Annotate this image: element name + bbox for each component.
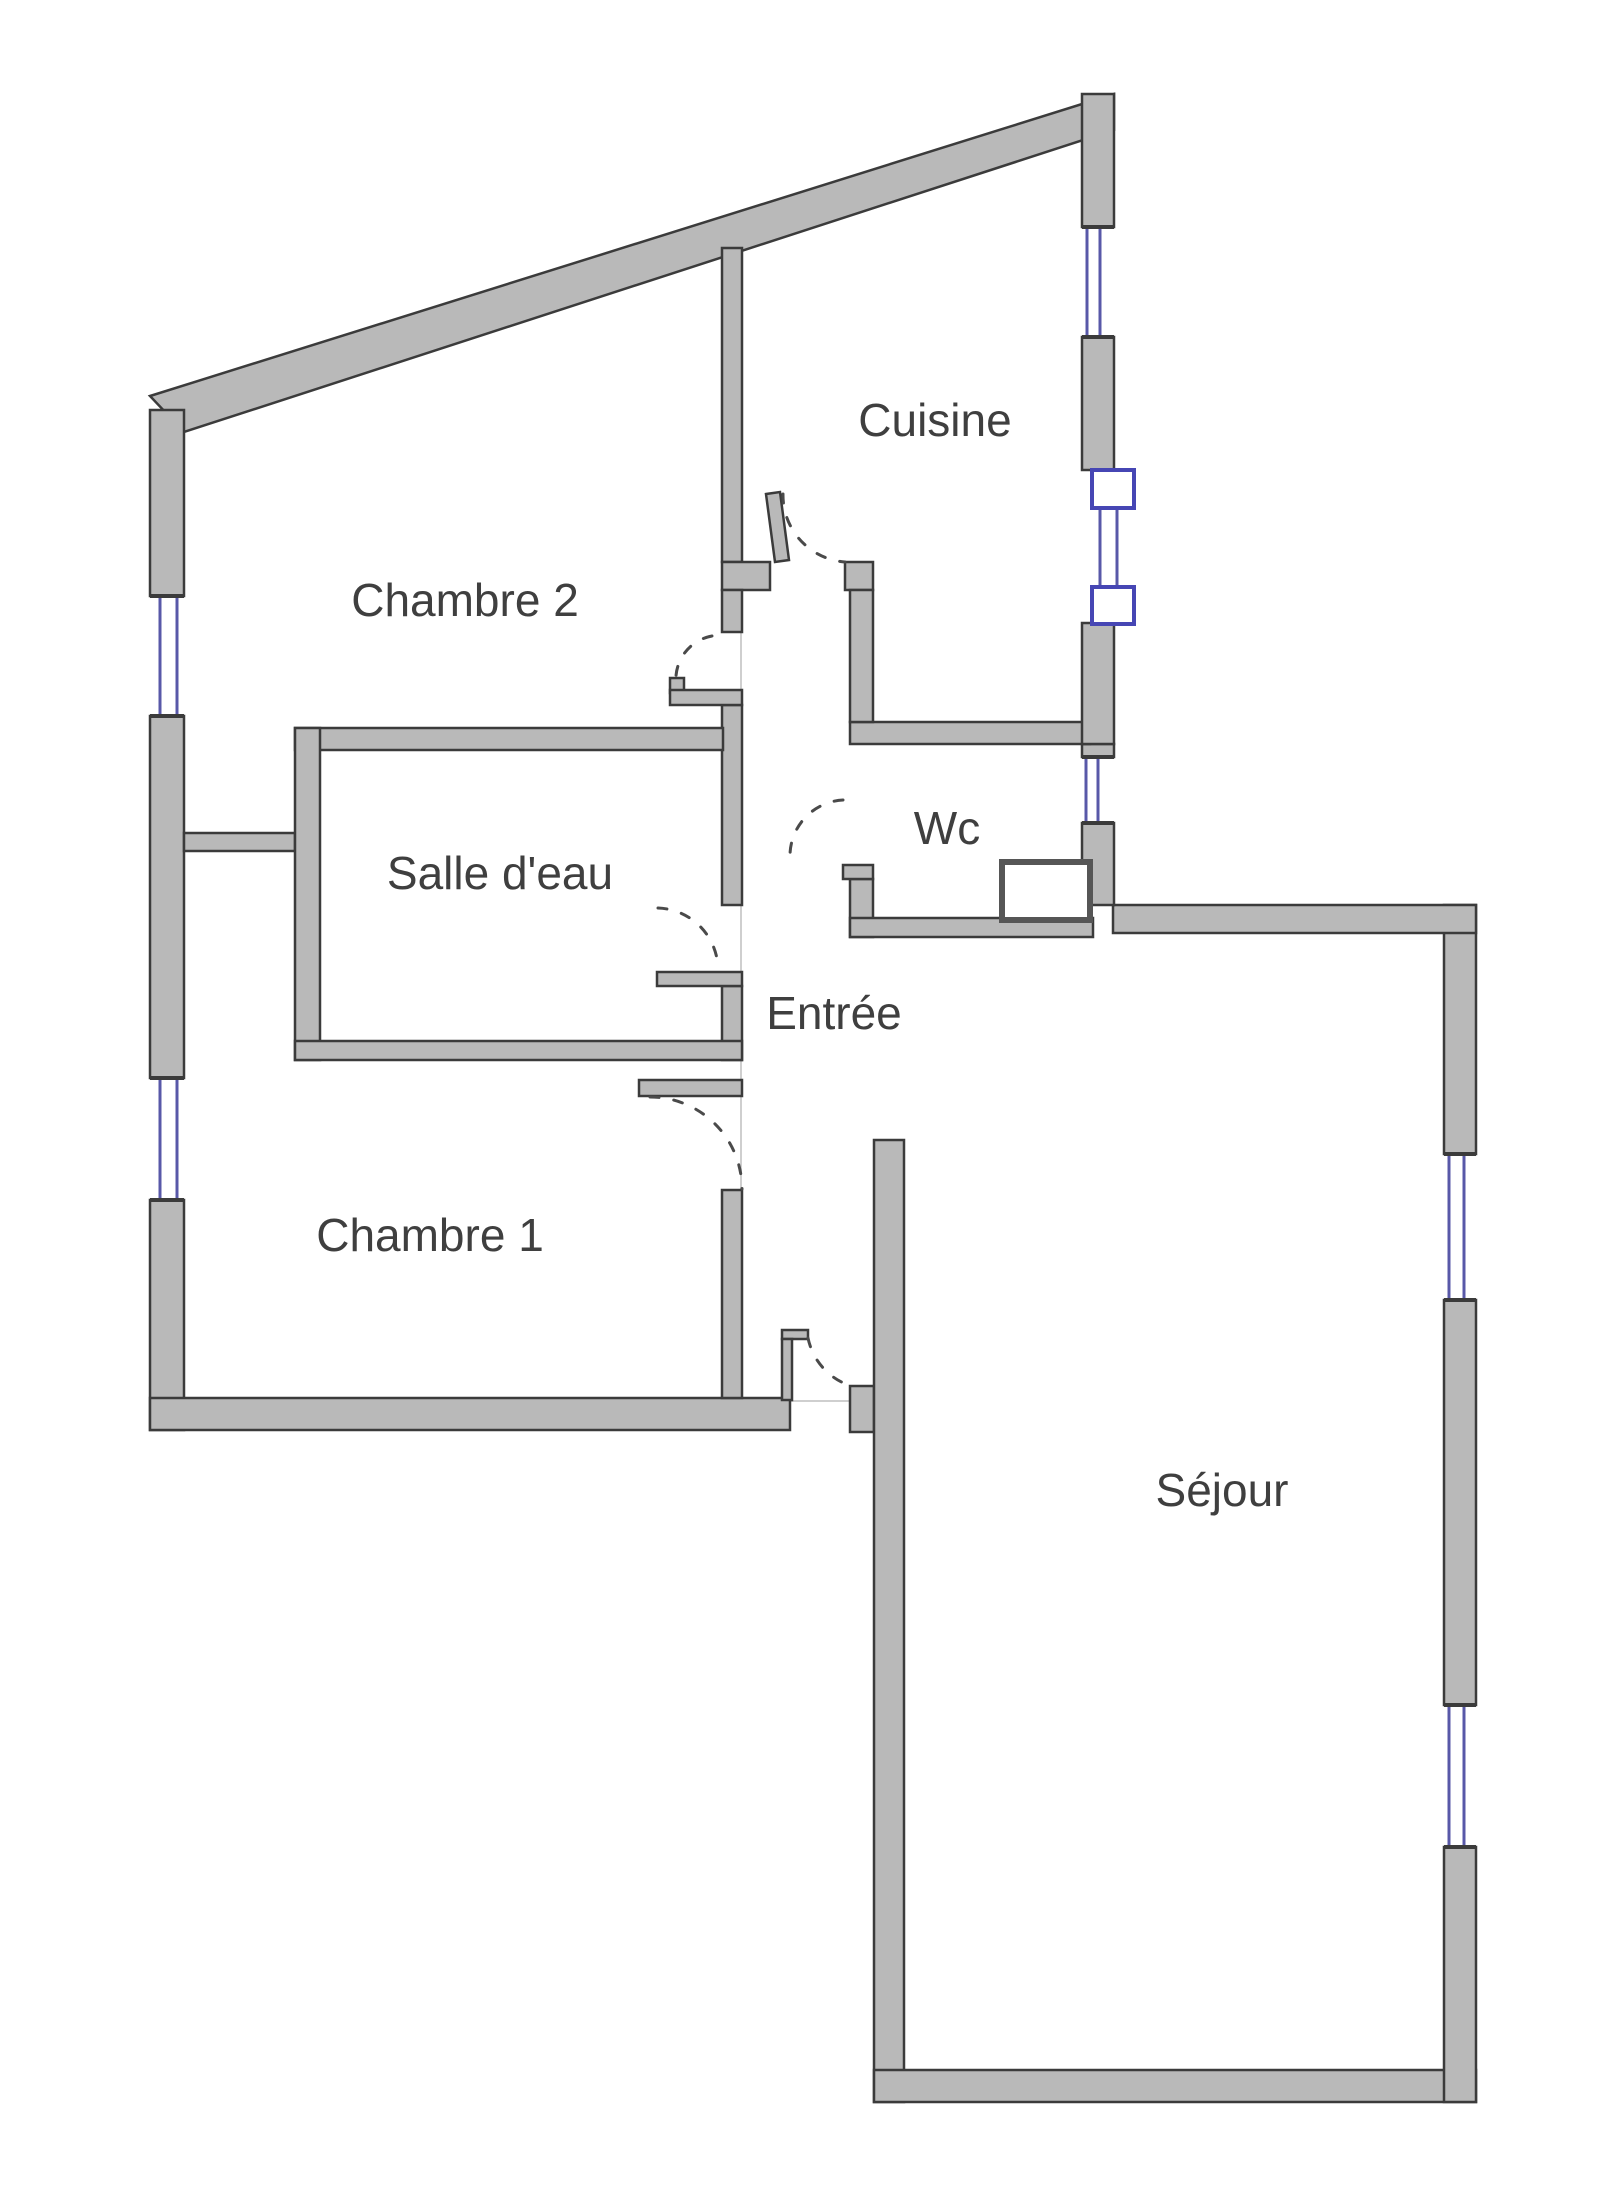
sejour-left-wall [874,1140,904,2102]
left-wall-lower [150,1200,184,1430]
kitchen-door-swing [783,494,845,562]
chambre2-door-swing [676,636,712,676]
room-label-chambre1: Chambre 1 [316,1209,544,1261]
left-wall-mid [150,716,184,1078]
window-wc-east-cap-top [1082,755,1114,759]
corridor-west-wall-b [722,705,742,905]
salledeau-left-wall [295,728,320,1060]
sejour-right-wall-upper [1444,905,1476,1154]
cuisine-bottom-wall-right [845,562,873,590]
wc-door-swing [790,800,843,855]
room-label-wc: Wc [914,802,980,854]
salledeau-top-wall [295,728,723,750]
salledeau-door-swing [658,908,718,970]
kitchen-door-leaf [766,492,789,562]
cuisine-bottom-wall-left [722,562,770,590]
salledeau-door-leaf [657,972,742,986]
top-diagonal-wall [150,94,1114,432]
entry-door-leaf [782,1339,792,1400]
chambre1-door-swing [650,1097,742,1189]
sejour-top-wall [1113,905,1476,933]
corridor-west-wall-d [722,1190,742,1398]
entry-jog-wall [850,1386,874,1432]
room-label-chambre2: Chambre 2 [351,574,579,626]
entry-door-swing [808,1338,851,1386]
cuisine-duct-square-top [1092,470,1134,508]
cuisine-duct-gap [1086,508,1120,587]
sejour-right-wall-mid [1444,1300,1476,1705]
window-left-chambre2 [150,596,184,716]
divider-chambre2-cuisine [722,248,742,562]
wc-duct-box [1002,862,1090,920]
sejour-right-wall-lower [1444,1847,1476,2102]
room-label-salledeau: Salle d'eau [387,847,613,899]
east-wall-cuisine-lower [1082,623,1114,744]
window-sejour-lower-cap-bottom [1444,1845,1476,1849]
window-cuisine-east-cap-bottom [1082,335,1114,339]
wc-left-wall-upper [850,590,873,722]
entry-door-leaf-cap [782,1330,808,1339]
window-sejour-upper-cap-bottom [1444,1298,1476,1302]
window-wc-east-cap-bottom [1082,821,1114,825]
corridor-west-wall-a [722,590,742,632]
chambre2-door-stub [670,690,742,705]
east-wall-peak [1082,94,1114,227]
window-left-chambre2-cap-bottom [150,714,184,718]
window-left-chambre1-cap-top [150,1076,184,1080]
wc-door-stub [843,865,873,879]
chambre1-bottom-wall [150,1398,790,1430]
chambre1-door-leaf [639,1080,742,1096]
window-cuisine-east-cap-top [1082,225,1114,229]
east-wall-cuisine-mid [1082,337,1114,470]
floor-plan-page: Chambre 2CuisineSalle d'eauWcEntréeChamb… [0,0,1600,2210]
wc-top-wall [850,722,1090,744]
sejour-bottom-wall [874,2070,1476,2102]
salledeau-bottom-wall [295,1041,742,1060]
room-label-entree: Entrée [766,987,902,1039]
window-left-chambre1 [150,1078,184,1200]
cuisine-duct-square-bottom [1092,587,1134,624]
room-label-cuisine: Cuisine [858,394,1011,446]
window-left-chambre2-cap-top [150,594,184,598]
window-sejour-upper-cap-top [1444,1152,1476,1156]
room-label-sejour: Séjour [1156,1464,1289,1516]
window-left-chambre1-cap-bottom [150,1198,184,1202]
left-wall-upper [150,410,184,596]
floor-plan: Chambre 2CuisineSalle d'eauWcEntréeChamb… [0,0,1600,2210]
window-sejour-lower-cap-top [1444,1703,1476,1707]
chambre2-strip-wall [184,833,295,851]
